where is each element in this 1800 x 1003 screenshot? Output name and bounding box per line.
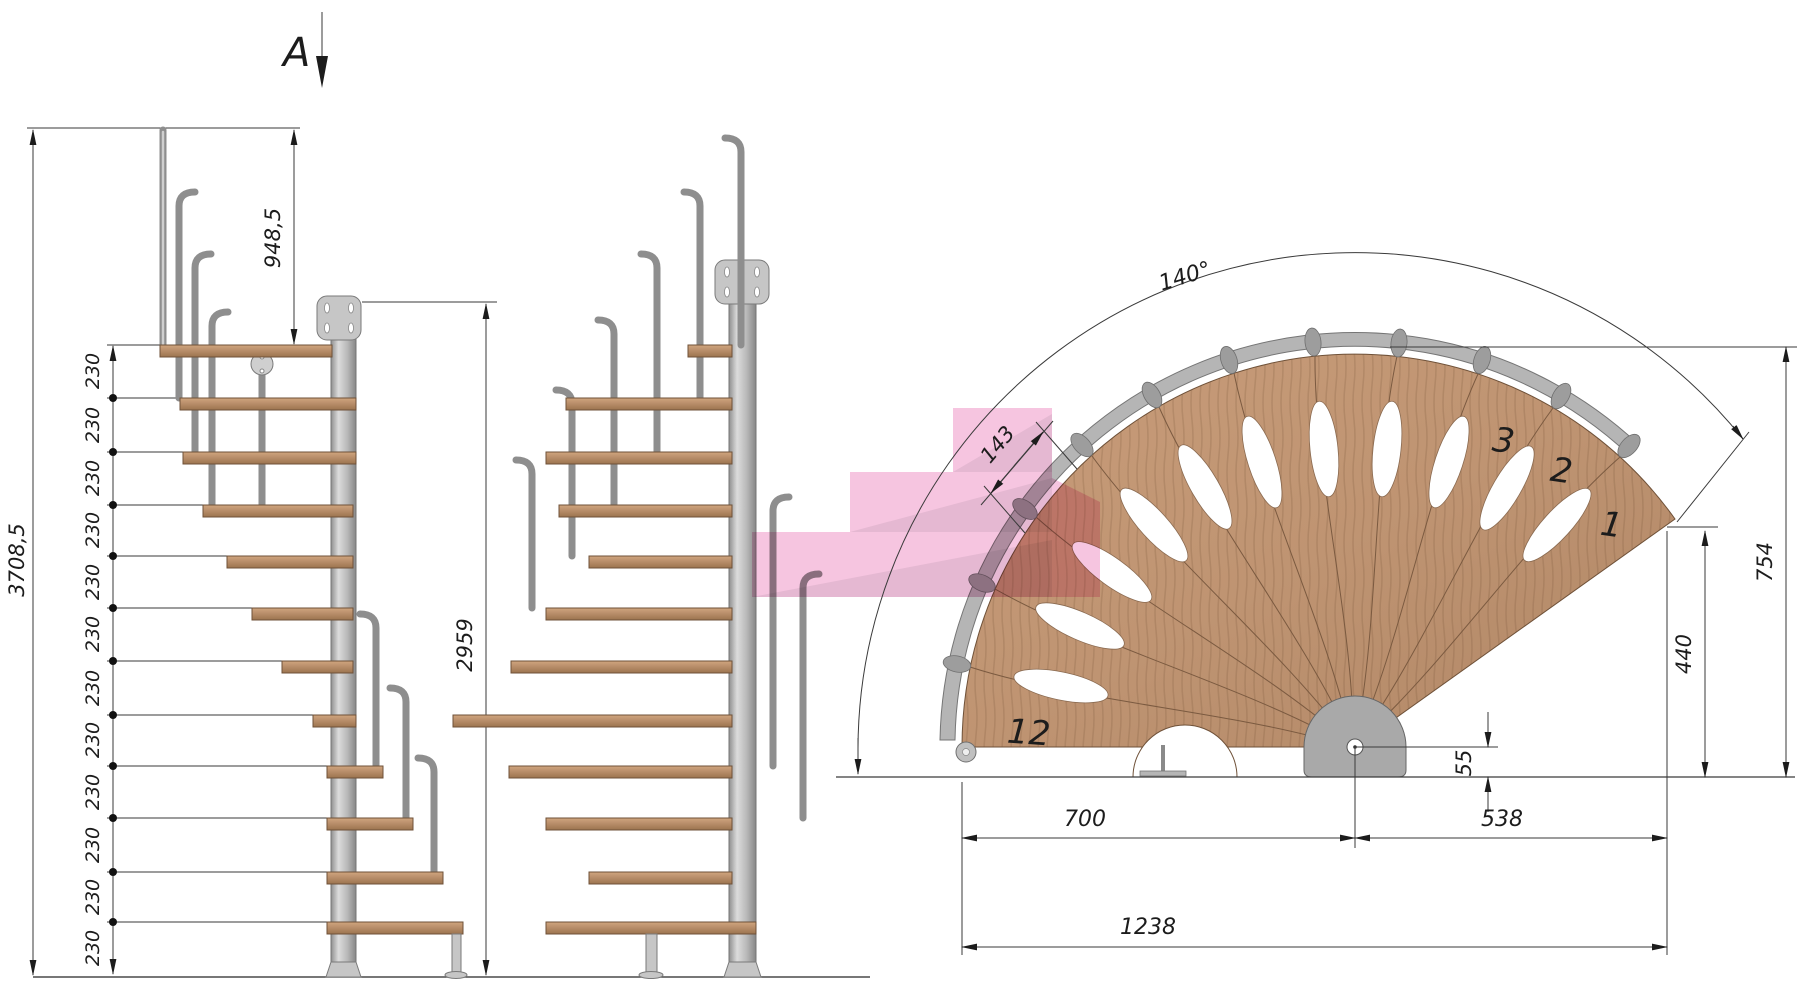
dim-total-height: 3708,5	[5, 130, 33, 975]
tread	[327, 922, 463, 934]
tread-support-foot	[646, 934, 657, 974]
riser-label: 230	[82, 353, 104, 389]
riser-label: 230	[82, 930, 104, 966]
tread	[589, 556, 732, 568]
tread	[566, 398, 732, 410]
dim-tip-offset-label: 440	[1672, 634, 1696, 674]
tread	[183, 452, 356, 464]
riser-label: 230	[82, 827, 104, 863]
arch-support-base	[1140, 771, 1186, 776]
riser-label: 230	[82, 722, 104, 758]
dim-right-span-label: 538	[1481, 807, 1523, 832]
tread	[511, 661, 732, 673]
dim-spans: 700 538	[962, 807, 1667, 838]
front-treads	[453, 345, 756, 934]
tread	[327, 766, 383, 778]
dim-riser-chain: 230 230 230 230 230 230 230 230 230 230 …	[82, 346, 117, 974]
balusters-left	[163, 130, 273, 505]
tread	[688, 345, 732, 357]
dim-pole-offset: 55	[1452, 712, 1488, 812]
tread	[546, 452, 732, 464]
dim-outer-radius: 754	[1753, 347, 1786, 777]
tread-number-12: 12	[1006, 712, 1052, 755]
dim-top-segment: 948,5	[261, 130, 294, 344]
dim-rail-height: 2959	[453, 304, 486, 975]
top-bracket	[317, 296, 361, 340]
tread	[509, 766, 732, 778]
pole-foot	[326, 962, 361, 977]
tread	[203, 505, 353, 517]
left-treads	[160, 345, 463, 934]
riser-label: 230	[82, 564, 104, 600]
riser-witness-lines	[107, 345, 463, 922]
tread	[546, 818, 732, 830]
plan-view: 140° 143 55 440	[752, 253, 1797, 955]
dim-total-span-label: 1238	[1120, 915, 1176, 940]
section-arrow-icon	[316, 56, 328, 88]
technical-drawing-canvas: A	[0, 0, 1800, 1003]
tread	[180, 398, 356, 410]
dim-total-span: 1238	[962, 915, 1667, 947]
riser-label: 230	[82, 774, 104, 810]
riser-label: 230	[82, 616, 104, 652]
tread	[559, 505, 732, 517]
dim-left-span-label: 700	[1064, 807, 1106, 832]
tread	[453, 715, 732, 727]
angle-arrow-right	[1733, 426, 1743, 439]
section-marker: A	[280, 12, 328, 88]
dim-angle-label: 140°	[1156, 257, 1214, 296]
pole-foot	[724, 962, 761, 977]
tread	[252, 608, 353, 620]
left-staircase	[160, 130, 467, 979]
pink-landing-overlay	[752, 408, 1100, 597]
tread	[546, 922, 756, 934]
tread-support-foot	[452, 934, 461, 974]
riser-label: 230	[82, 879, 104, 915]
riser-label: 230	[82, 512, 104, 548]
tread	[546, 608, 732, 620]
dim-tip-offset: 440	[1672, 531, 1705, 777]
dim-total-height-label: 3708,5	[5, 523, 29, 596]
dim-rail-height-label: 2959	[453, 618, 477, 671]
dim-pole-offset-label: 55	[1452, 750, 1476, 777]
staircase-drawing: A	[0, 0, 1800, 1003]
tread	[282, 661, 353, 673]
tread	[589, 872, 732, 884]
riser-labels: 230 230 230 230 230 230 230 230 230 230 …	[82, 353, 104, 966]
riser-label: 230	[82, 460, 104, 496]
tread	[327, 872, 443, 884]
angle-radial-line	[1677, 432, 1749, 522]
balusters-right	[360, 614, 434, 872]
tread	[160, 345, 332, 357]
center-pole	[729, 302, 756, 970]
riser-label: 230	[82, 407, 104, 443]
section-label: A	[280, 30, 310, 76]
riser-label: 230	[82, 670, 104, 706]
tread	[327, 818, 413, 830]
tread	[313, 715, 356, 727]
dim-outer-radius-label: 754	[1753, 542, 1777, 582]
tread	[227, 556, 353, 568]
dim-top-segment-label: 948,5	[261, 208, 285, 268]
